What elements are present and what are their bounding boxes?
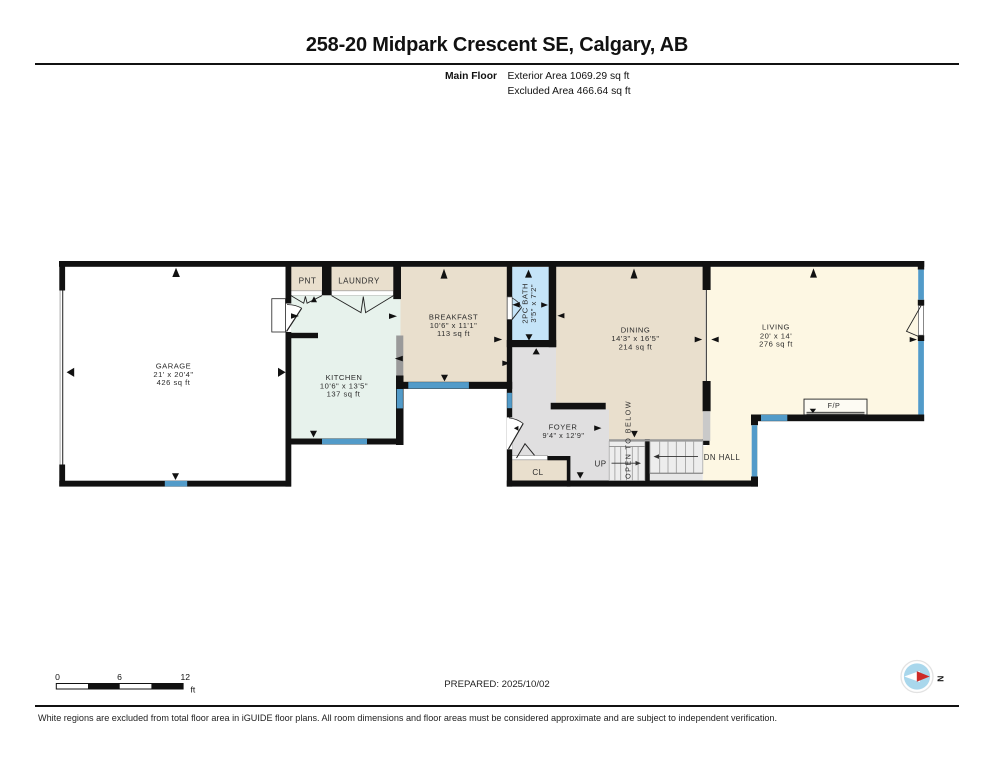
svg-text:DN HALL: DN HALL — [704, 453, 741, 462]
svg-text:426 sq ft: 426 sq ft — [157, 378, 191, 387]
svg-text:F/P: F/P — [828, 401, 841, 410]
svg-text:214 sq ft: 214 sq ft — [619, 343, 653, 352]
svg-text:OPEN TO BELOW: OPEN TO BELOW — [623, 400, 632, 479]
svg-text:12: 12 — [181, 672, 191, 682]
svg-text:PNT: PNT — [299, 276, 317, 285]
svg-text:ft: ft — [191, 684, 196, 694]
svg-text:LIVING: LIVING — [762, 323, 790, 332]
svg-text:9'4" x 12'9": 9'4" x 12'9" — [543, 431, 585, 440]
svg-text:3'5" x 7'2": 3'5" x 7'2" — [529, 284, 538, 323]
svg-text:N: N — [936, 676, 946, 682]
svg-text:0: 0 — [55, 672, 60, 682]
svg-text:137 sq ft: 137 sq ft — [327, 389, 361, 398]
svg-text:CL: CL — [532, 468, 543, 477]
svg-text:113 sq ft: 113 sq ft — [437, 329, 470, 338]
svg-text:LAUNDRY: LAUNDRY — [338, 277, 380, 286]
svg-text:UP: UP — [594, 459, 606, 468]
svg-text:276 sq ft: 276 sq ft — [759, 340, 793, 349]
svg-text:6: 6 — [117, 672, 122, 682]
